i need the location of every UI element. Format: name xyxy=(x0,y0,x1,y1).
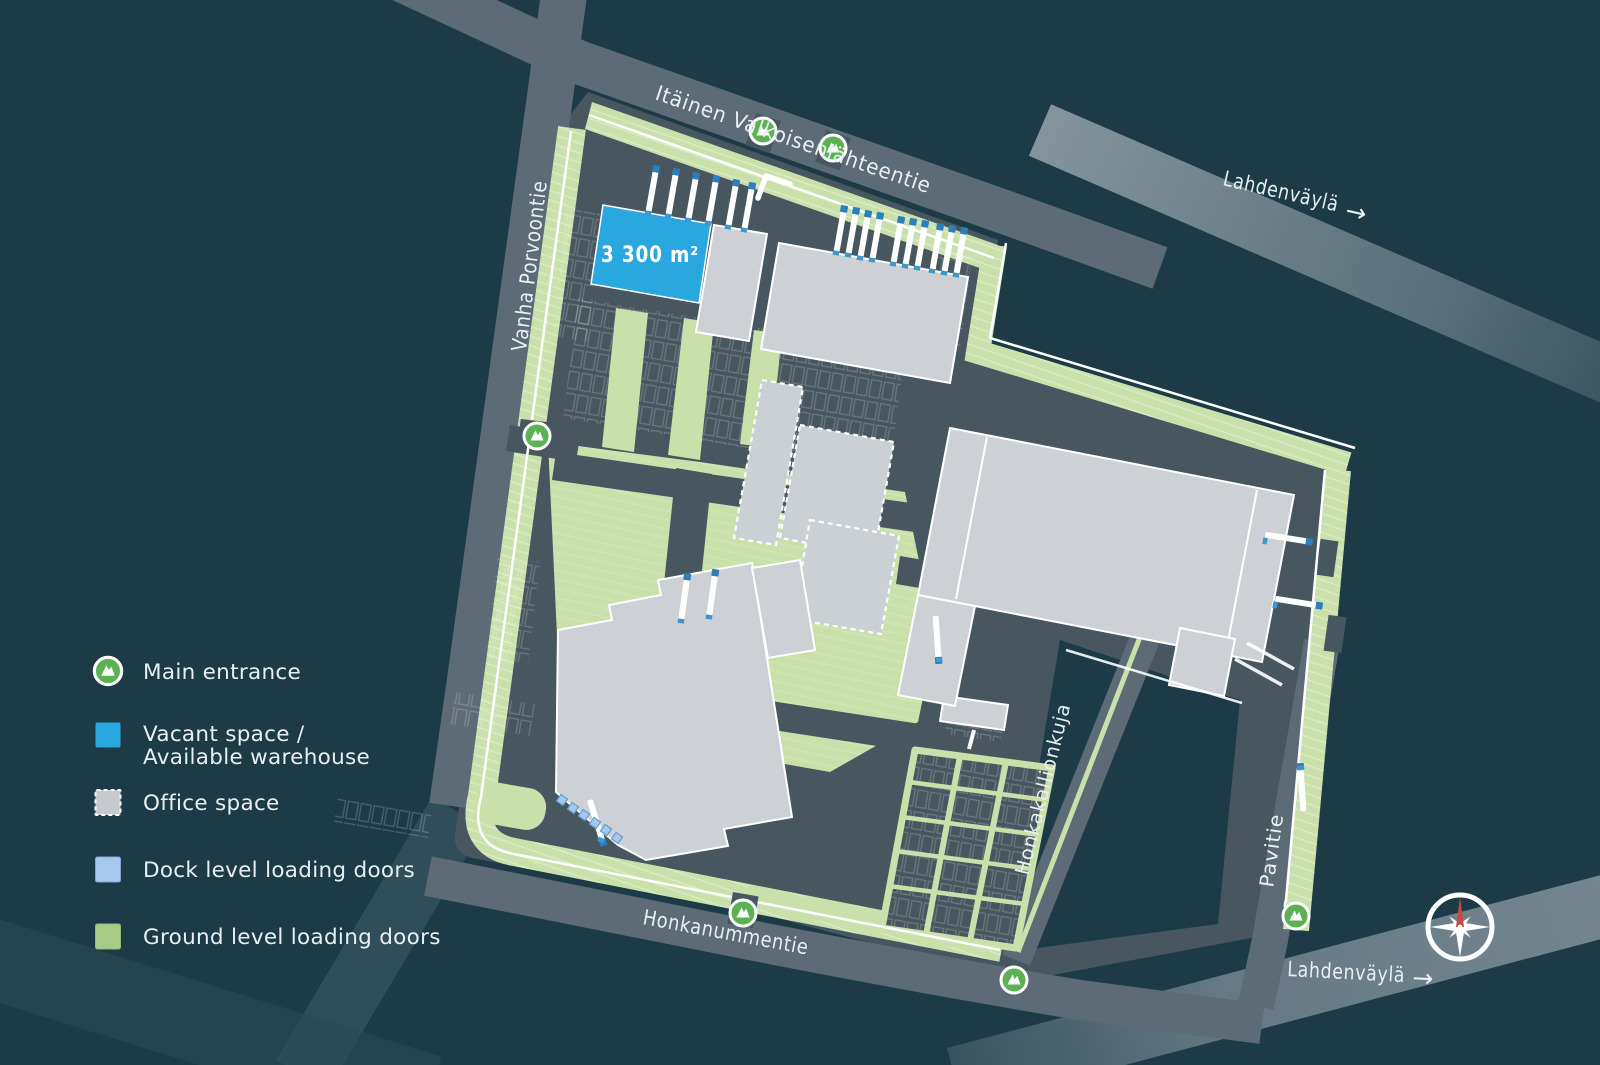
legend-item-dock-level-doors: Dock level loading doors xyxy=(96,857,416,883)
main-entrance-legend-icon xyxy=(94,657,121,684)
dock-doors-swatch xyxy=(96,857,121,882)
legend-label: Main entrance xyxy=(143,660,301,685)
site-plan-page: 3 300 m² xyxy=(0,0,1600,1065)
legend-label: Vacant space / xyxy=(143,722,305,747)
vacant-space-swatch xyxy=(96,723,121,748)
main-entrance-icon xyxy=(1283,903,1309,929)
office-space-swatch xyxy=(96,790,121,815)
direction-arrow-icon: → xyxy=(1412,963,1434,993)
ground-doors-swatch xyxy=(96,924,121,949)
legend-item-ground-level-doors: Ground level loading doors xyxy=(96,924,441,950)
legend-label-line2: Available warehouse xyxy=(143,745,370,770)
legend-label: Office space xyxy=(143,791,280,816)
legend-label: Ground level loading doors xyxy=(143,925,441,950)
site-plan-map: 3 300 m² xyxy=(0,0,1600,1065)
main-entrance-icon xyxy=(524,423,550,449)
compass-icon xyxy=(1428,895,1492,959)
main-entrance-icon xyxy=(1001,967,1027,993)
legend-label: Dock level loading doors xyxy=(143,858,415,883)
vacant-area-label: 3 300 m² xyxy=(601,243,699,268)
